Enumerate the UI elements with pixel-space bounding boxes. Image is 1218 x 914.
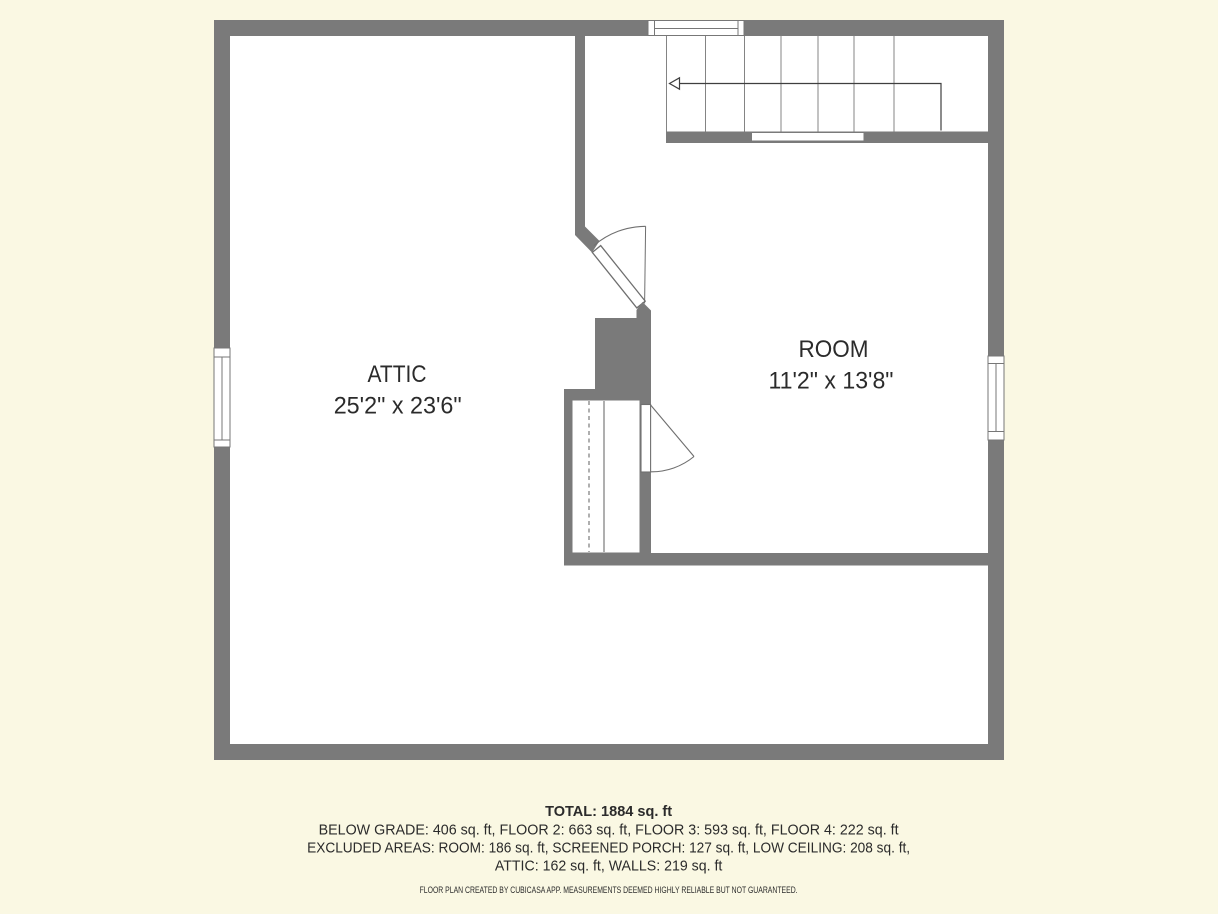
svg-text:TOTAL: 1884 sq. ft: TOTAL: 1884 sq. ft [545,803,672,820]
svg-text:ROOM: ROOM [799,336,869,363]
svg-text:EXCLUDED AREAS: ROOM: 186 sq.: EXCLUDED AREAS: ROOM: 186 sq. ft, SCREEN… [307,840,910,857]
svg-text:BELOW GRADE: 406 sq. ft, FLOOR: BELOW GRADE: 406 sq. ft, FLOOR 2: 663 sq… [319,822,900,839]
svg-text:25'2" x 23'6": 25'2" x 23'6" [334,393,462,420]
svg-text:FLOOR PLAN CREATED BY CUBICASA: FLOOR PLAN CREATED BY CUBICASA APP. MEAS… [420,885,798,895]
svg-text:ATTIC: ATTIC [368,361,427,388]
svg-text:11'2" x 13'8": 11'2" x 13'8" [769,368,894,395]
svg-text:ATTIC: 162 sq. ft, WALLS: 219: ATTIC: 162 sq. ft, WALLS: 219 sq. ft [495,858,723,875]
